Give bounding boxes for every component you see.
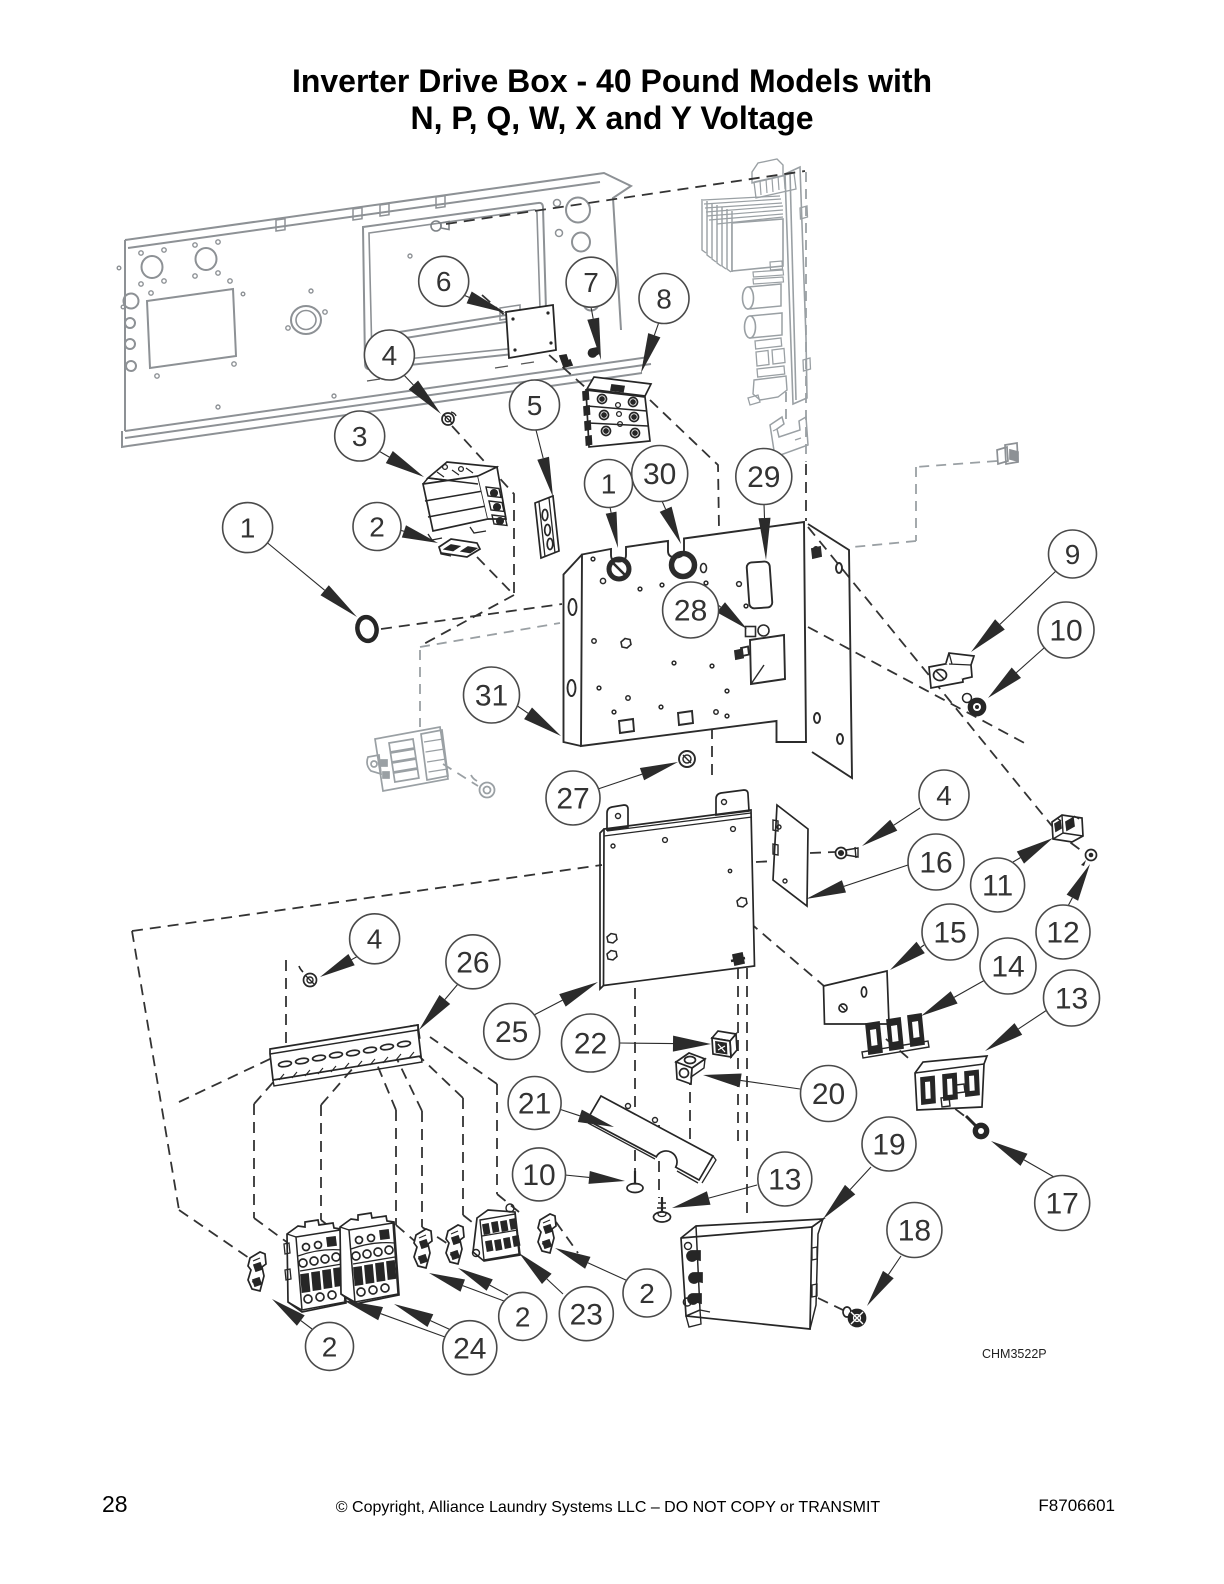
- svg-text:N, P, Q, W, X and Y Voltage: N, P, Q, W, X and Y Voltage: [410, 100, 813, 136]
- svg-text:14: 14: [991, 951, 1024, 984]
- svg-text:13: 13: [768, 1164, 801, 1197]
- svg-text:1: 1: [601, 468, 617, 499]
- svg-text:2: 2: [515, 1301, 531, 1332]
- svg-text:22: 22: [574, 1028, 607, 1061]
- svg-text:7: 7: [583, 267, 599, 298]
- svg-text:2: 2: [369, 511, 385, 542]
- svg-text:4: 4: [382, 340, 398, 371]
- svg-text:2: 2: [322, 1331, 338, 1362]
- svg-text:21: 21: [518, 1088, 551, 1121]
- svg-text:4: 4: [936, 780, 952, 811]
- svg-text:12: 12: [1046, 917, 1079, 950]
- svg-text:9: 9: [1065, 539, 1081, 570]
- svg-text:© Copyright, Alliance Laundry: © Copyright, Alliance Laundry Systems LL…: [336, 1499, 881, 1516]
- svg-text:11: 11: [982, 870, 1013, 903]
- svg-text:26: 26: [456, 946, 489, 979]
- svg-text:25: 25: [495, 1016, 528, 1049]
- svg-text:23: 23: [570, 1298, 603, 1331]
- svg-text:18: 18: [898, 1215, 931, 1248]
- svg-text:29: 29: [747, 461, 780, 494]
- svg-text:2: 2: [639, 1278, 655, 1309]
- svg-text:24: 24: [453, 1332, 486, 1365]
- svg-text:10: 10: [1049, 615, 1082, 648]
- svg-text:28: 28: [102, 1491, 128, 1517]
- svg-text:30: 30: [643, 458, 676, 491]
- svg-text:17: 17: [1046, 1188, 1079, 1221]
- svg-text:20: 20: [812, 1078, 845, 1111]
- svg-text:F8706601: F8706601: [1038, 1496, 1115, 1515]
- svg-text:6: 6: [436, 266, 452, 297]
- svg-text:27: 27: [556, 783, 589, 816]
- svg-text:13: 13: [1055, 983, 1088, 1016]
- svg-text:1: 1: [240, 513, 256, 544]
- svg-text:CHM3522P: CHM3522P: [982, 1347, 1047, 1361]
- svg-text:19: 19: [872, 1129, 905, 1162]
- svg-text:16: 16: [919, 847, 952, 880]
- svg-text:28: 28: [674, 595, 707, 628]
- svg-text:5: 5: [527, 390, 543, 421]
- svg-text:10: 10: [522, 1159, 555, 1192]
- svg-text:31: 31: [475, 680, 508, 713]
- svg-text:3: 3: [352, 421, 368, 452]
- svg-text:15: 15: [933, 917, 966, 950]
- svg-text:8: 8: [656, 283, 672, 314]
- svg-text:Inverter Drive Box - 40 Pound: Inverter Drive Box - 40 Pound Models wit…: [292, 63, 932, 99]
- svg-text:4: 4: [367, 924, 383, 955]
